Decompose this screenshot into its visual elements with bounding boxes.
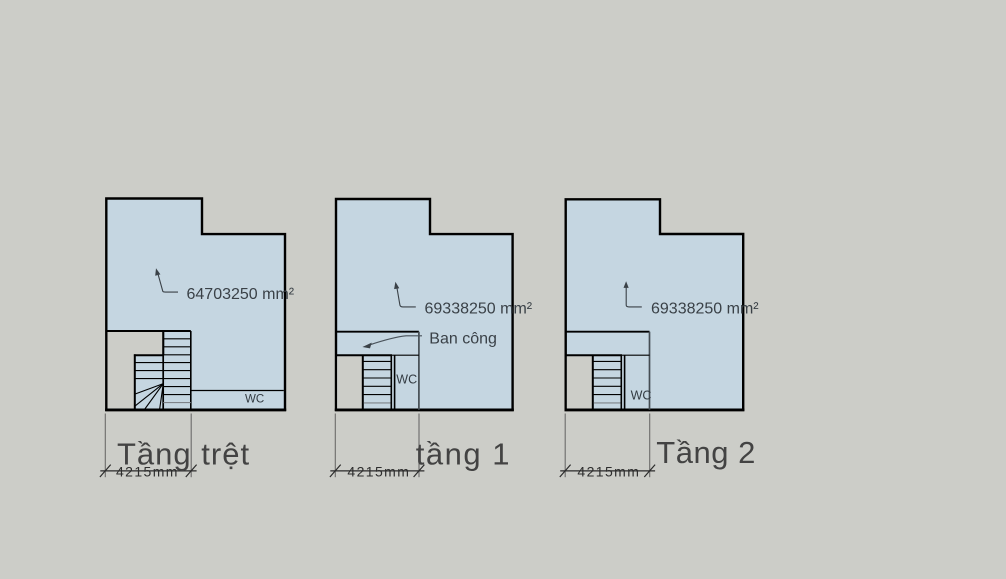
svg-text:69338250 mm²: 69338250 mm²	[425, 300, 533, 317]
svg-text:WC: WC	[245, 393, 264, 405]
svg-text:WC: WC	[396, 373, 417, 387]
svg-text:Ban công: Ban công	[429, 330, 497, 347]
svg-text:Tầng 2: Tầng 2	[656, 435, 756, 470]
svg-text:WC: WC	[631, 388, 652, 402]
svg-text:4215mm: 4215mm	[347, 463, 410, 479]
svg-text:Tầng trệt: Tầng trệt	[117, 436, 250, 471]
svg-text:4215mm: 4215mm	[577, 463, 640, 479]
svg-text:69338250 mm²: 69338250 mm²	[651, 300, 759, 317]
svg-text:64703250 mm²: 64703250 mm²	[187, 286, 295, 303]
svg-text:tầng 1: tầng 1	[416, 436, 511, 471]
